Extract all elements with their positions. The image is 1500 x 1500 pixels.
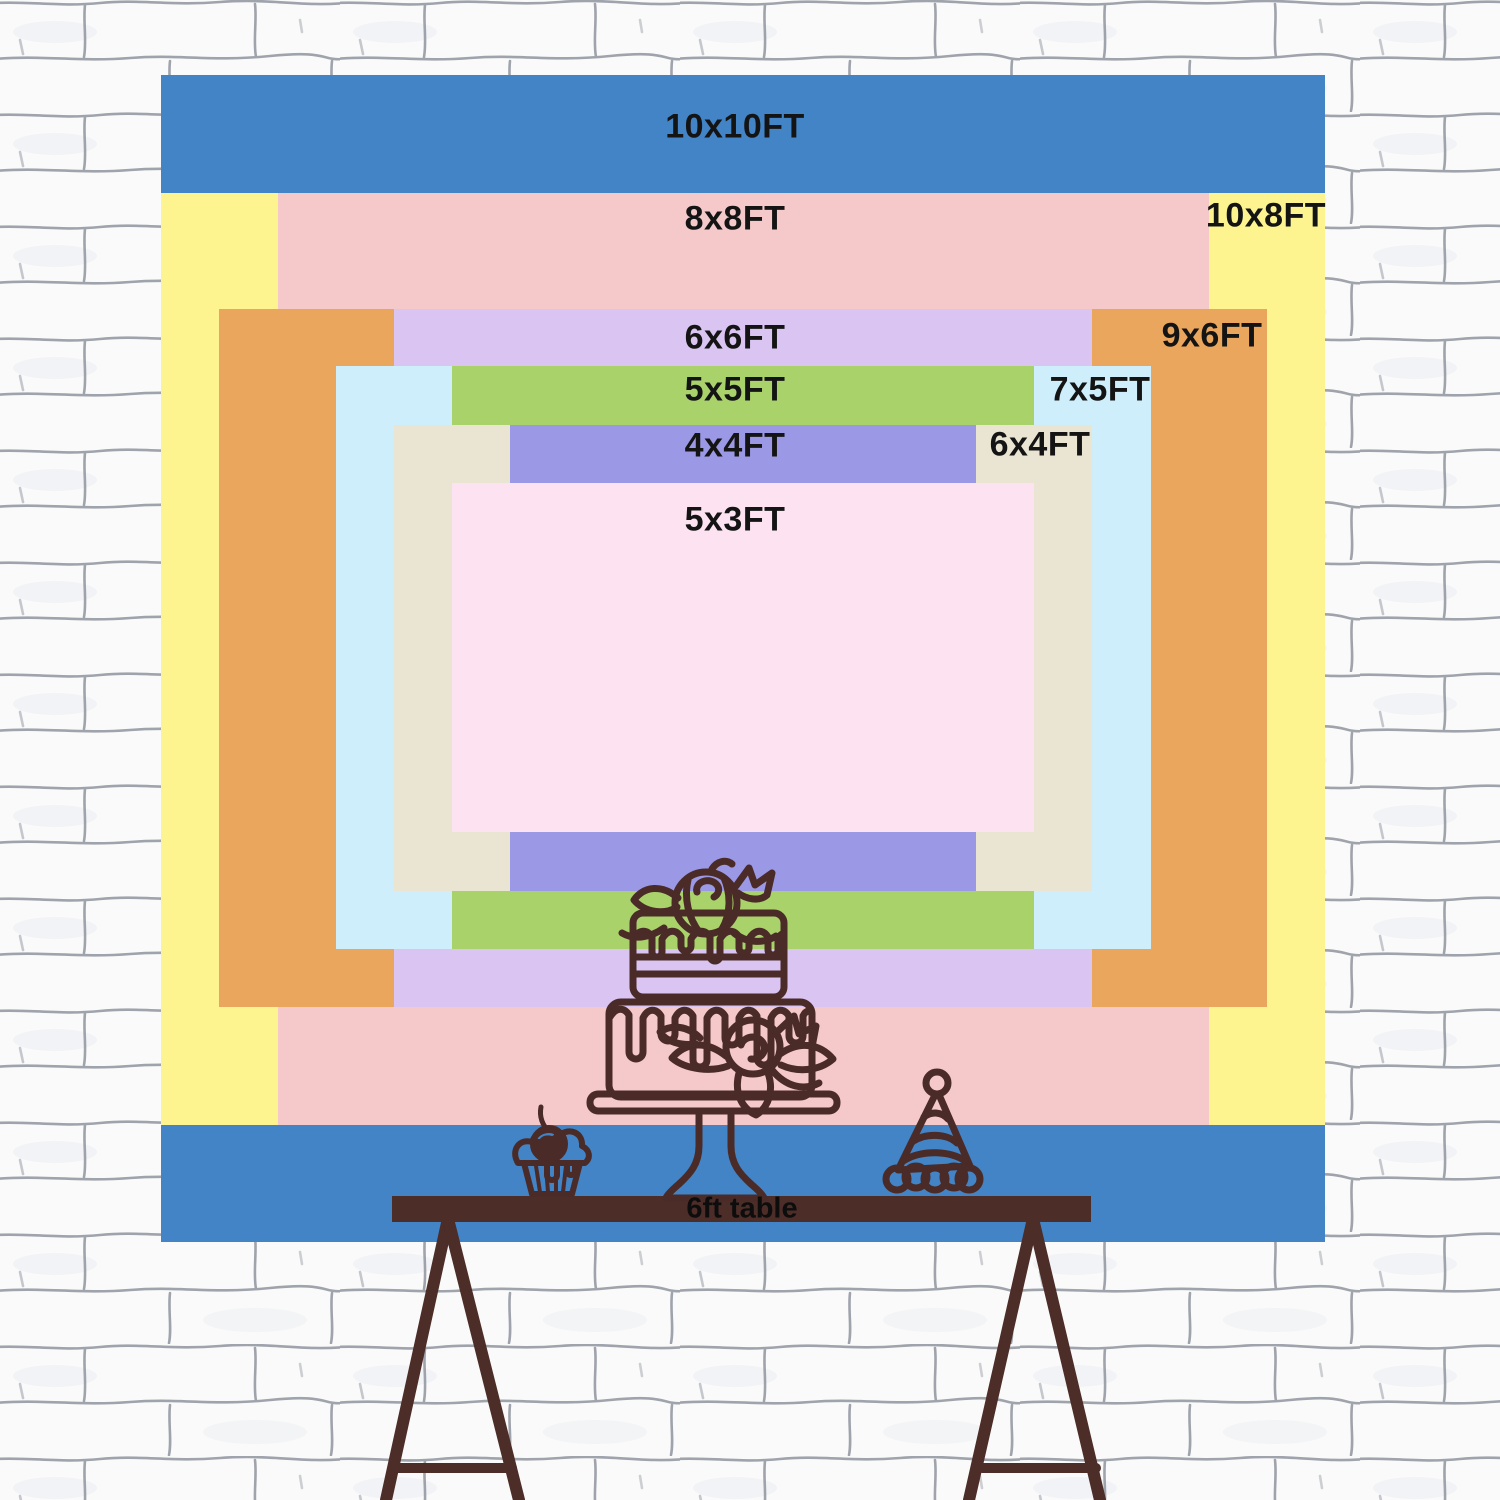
cupcake-line-art (515, 1107, 589, 1194)
table-size-label: 6ft table (686, 1193, 797, 1226)
table-and-cake-artwork (0, 0, 1500, 1500)
cake-line-art (590, 861, 837, 1198)
table-legs (386, 1223, 1100, 1500)
backdrop-size-chart: 10x10FT 10x8FT 8x8FT 9x6FT 6x6FT 7x5FT 5… (0, 0, 1500, 1500)
party-hat-line-art (886, 1072, 980, 1190)
